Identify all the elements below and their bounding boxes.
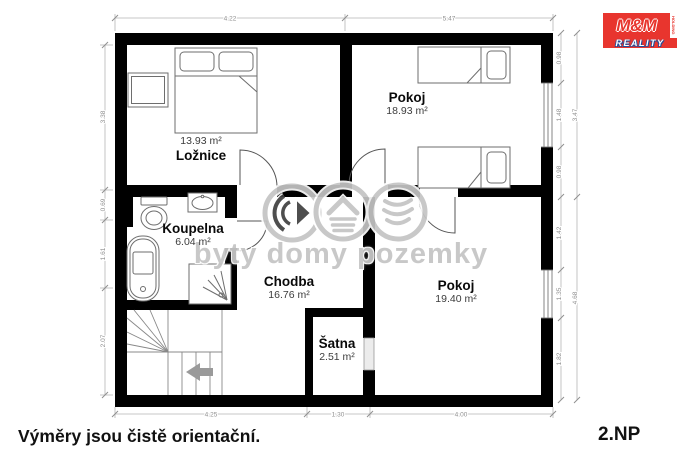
watermark-text: byty domy pozemky [141,238,541,271]
svg-text:1.61: 1.61 [100,247,107,260]
door-arc-loznice [240,150,277,187]
sink-icon [188,193,217,212]
svg-text:3.47: 3.47 [572,108,579,121]
disclaimer-text: Výměry jsou čistě orientační. [18,426,260,447]
svg-text:4.00: 4.00 [455,412,468,419]
svg-text:0.98: 0.98 [556,51,563,64]
svg-text:0.98: 0.98 [556,165,563,178]
floorplan-drawing: 4.22 5.47 4.25 1.30 4.00 3.38 0.69 1.61 … [0,0,686,457]
single-bed-bottom-icon [418,147,510,188]
toilet-icon [141,197,167,230]
svg-text:2.07: 2.07 [100,334,107,347]
svg-text:1.82: 1.82 [556,352,563,365]
door-arc-pokoj-top [349,149,385,185]
svg-text:0.69: 0.69 [100,198,107,211]
mm-reality-logo: M&M HOLDING REALITY [603,13,677,48]
svg-text:1.48: 1.48 [556,108,563,121]
svg-text:4.25: 4.25 [205,412,218,419]
single-bed-top-icon [418,47,510,83]
direction-arrow-icon [186,363,213,381]
svg-text:4.68: 4.68 [572,291,579,304]
logo-reality-band: REALITY [603,38,677,48]
svg-text:1.30: 1.30 [332,412,345,419]
wardrobe-icon [128,73,168,107]
svg-text:5.47: 5.47 [443,16,456,23]
floor-plan-canvas: 4.22 5.47 4.25 1.30 4.00 3.38 0.69 1.61 … [0,0,686,457]
window-right-bottom [540,270,554,318]
svg-text:3.38: 3.38 [100,110,107,123]
logo-mm-text: M&M [603,13,670,38]
logo-holding-text: HOLDING [670,13,677,38]
svg-text:1.35: 1.35 [556,287,563,300]
svg-text:1.42: 1.42 [556,226,563,239]
stairs-icon [127,310,222,395]
door-satna [364,338,374,370]
floor-label: 2.NP [598,424,640,446]
svg-text:4.22: 4.22 [224,16,237,23]
double-bed-icon [175,48,257,133]
window-right-top [540,83,554,147]
logo-top-band: M&M HOLDING [603,13,677,38]
